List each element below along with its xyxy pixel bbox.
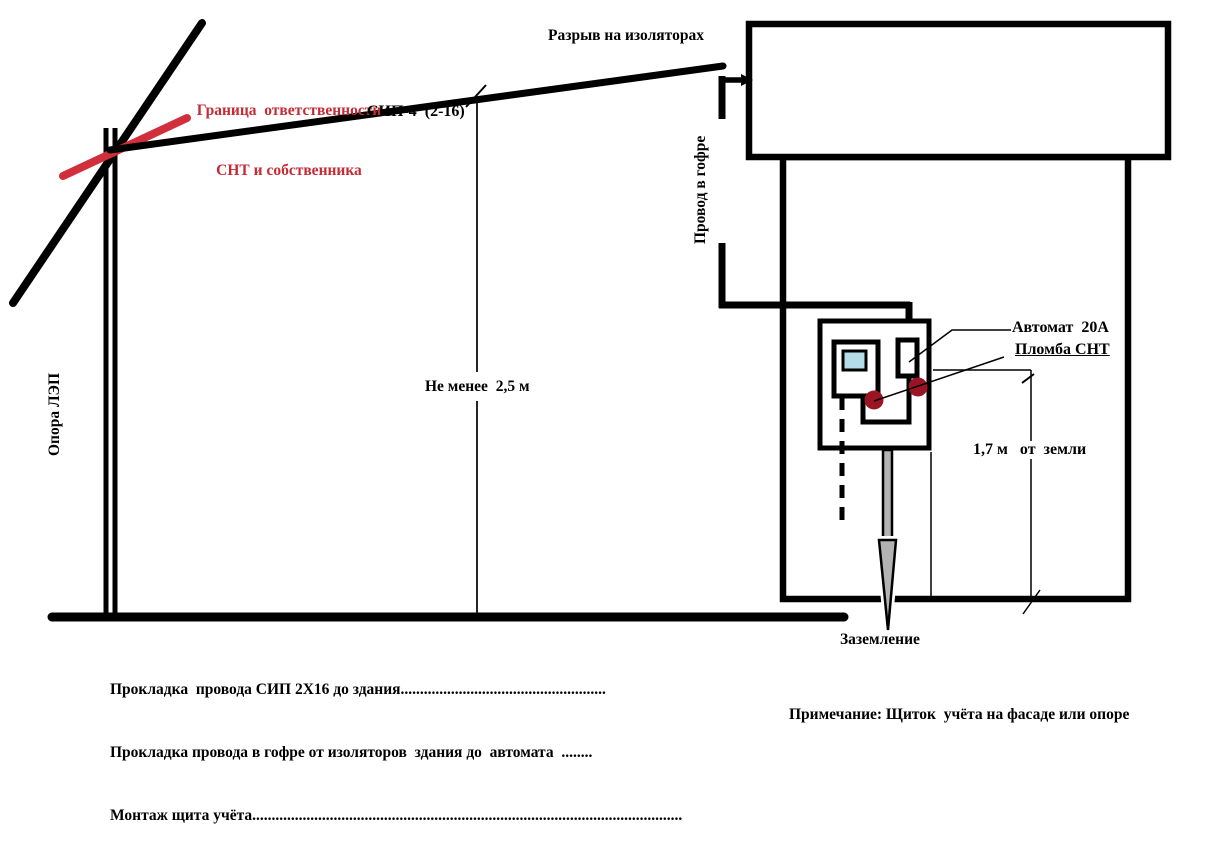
electrical-connection-diagram: { "title": "Схема подключения электроэне… <box>0 0 1208 842</box>
boundary-label: Граница ответственности СНТ и собственни… <box>186 61 392 201</box>
service-item: Прокладка провода СИП 2Х16 до здания....… <box>110 679 682 700</box>
meter-screen <box>843 351 866 370</box>
seal-label: Пломба СНТ <box>1015 341 1110 359</box>
services-list: Прокладка провода СИП 2Х16 до здания....… <box>110 637 682 842</box>
meter-height-label: 1,7 м от земли <box>971 441 1088 459</box>
service-item: Монтаж щита учёта.......................… <box>110 805 682 826</box>
note-label: Примечание: Щиток учёта на фасаде или оп… <box>789 706 1129 724</box>
break-on-insulators-label: Разрыв на изоляторах <box>548 27 704 45</box>
boundary-label-line1: Граница ответственности <box>186 101 392 121</box>
grounding-label: Заземление <box>840 631 920 649</box>
sip-wire-label: СИП-4 (2-16) <box>367 103 465 121</box>
seal-right <box>909 378 928 397</box>
ground-rod <box>883 450 892 541</box>
breaker-label: Автомат 20А <box>1012 319 1109 337</box>
conduit-label: Провод в гофре <box>692 136 710 244</box>
boundary-label-line2: СНТ и собственника <box>186 161 392 181</box>
service-item: Прокладка провода в гофре от изоляторов … <box>110 742 682 763</box>
pole-label: Опора ЛЭП <box>46 373 64 456</box>
seal-left <box>865 391 884 410</box>
min-clearance-label: Не менее 2,5 м <box>423 378 532 396</box>
building-roof <box>749 24 1168 157</box>
